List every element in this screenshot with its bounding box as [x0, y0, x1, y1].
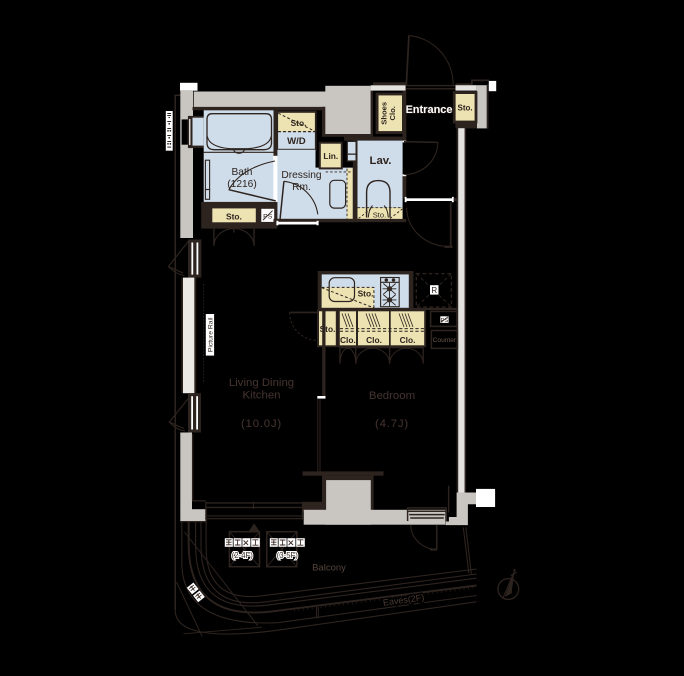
svg-text:Lin.: Lin.: [323, 151, 338, 161]
svg-text:Sto.: Sto.: [358, 288, 374, 298]
svg-text:Entrance: Entrance: [405, 104, 452, 116]
svg-text:Clo.: Clo.: [366, 335, 382, 345]
svg-text:(2·4F): (2·4F): [232, 551, 254, 560]
svg-text:Sto.: Sto.: [373, 211, 387, 220]
svg-text:Balcony: Balcony: [312, 563, 346, 574]
svg-text:Kitchen: Kitchen: [243, 390, 281, 402]
svg-text:Clo.: Clo.: [400, 335, 416, 345]
svg-text:(4.7J): (4.7J): [375, 418, 409, 430]
svg-text:Clo.: Clo.: [388, 106, 397, 120]
svg-text:Bath: Bath: [232, 167, 253, 178]
svg-text:Picture Rail: Picture Rail: [207, 317, 214, 352]
svg-text:Bedroom: Bedroom: [369, 390, 415, 402]
svg-text:Sto.: Sto.: [226, 211, 242, 221]
svg-text:Dressing: Dressing: [281, 170, 322, 181]
svg-text:Lav.: Lav.: [370, 155, 392, 167]
svg-text:W/D: W/D: [287, 136, 306, 147]
svg-text:R: R: [431, 286, 437, 295]
svg-text:PS: PS: [263, 213, 273, 220]
svg-text:(3·5F): (3·5F): [277, 551, 299, 560]
svg-text:Counter: Counter: [433, 337, 457, 344]
svg-text:Living Dining: Living Dining: [229, 377, 294, 389]
svg-text:PS: PS: [441, 318, 449, 324]
svg-text:Sto.: Sto.: [458, 104, 473, 113]
svg-text:Sto.: Sto.: [320, 324, 336, 334]
svg-text:Sto.: Sto.: [291, 118, 307, 128]
svg-text:(10.0J): (10.0J): [241, 418, 282, 430]
svg-text:Clo.: Clo.: [340, 335, 356, 345]
